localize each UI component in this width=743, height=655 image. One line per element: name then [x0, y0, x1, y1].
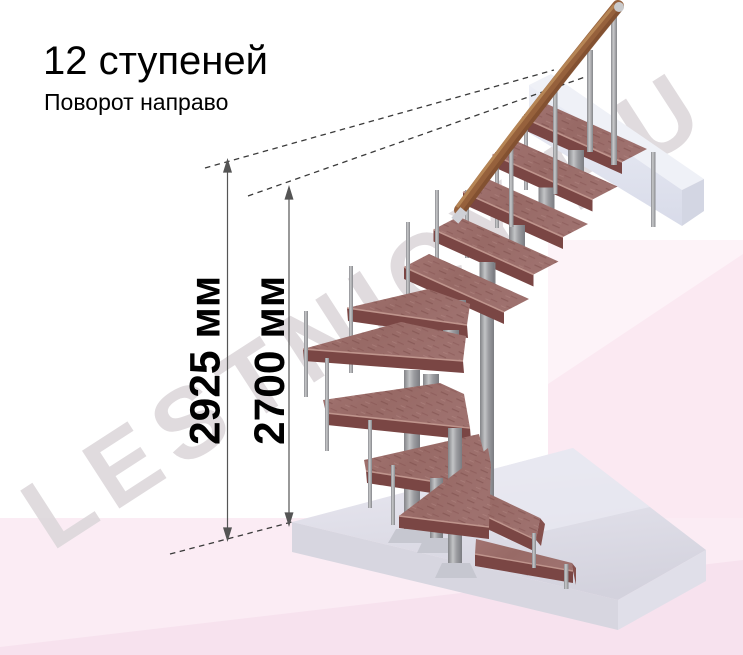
svg-text:12 ступеней: 12 ступеней [43, 39, 268, 83]
svg-text:Поворот направо: Поворот направо [44, 89, 228, 115]
svg-text:2925 мм: 2925 мм [183, 276, 230, 445]
svg-text:2700 мм: 2700 мм [247, 276, 294, 445]
